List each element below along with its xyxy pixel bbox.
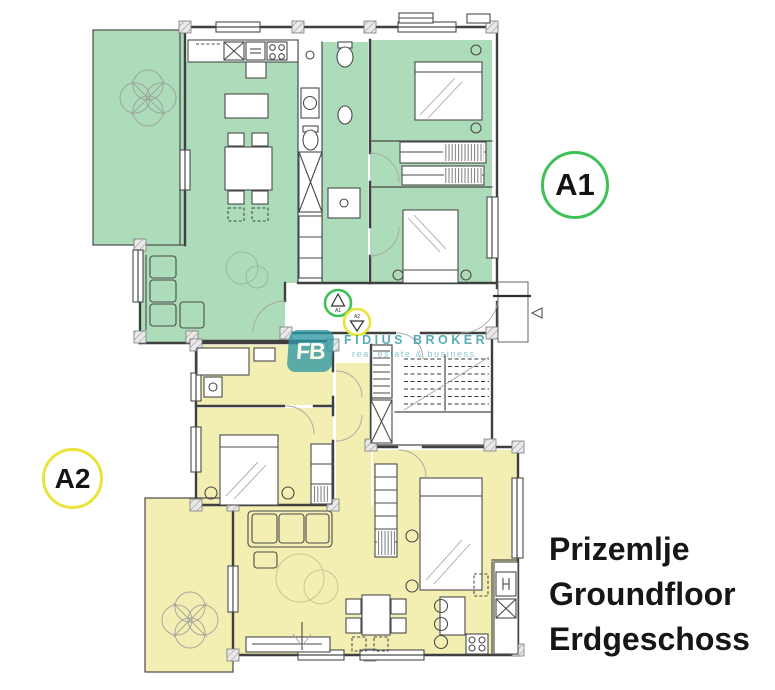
- sink-icon: [224, 42, 244, 60]
- terrace-a2: [145, 498, 233, 672]
- shower-icon: [328, 188, 360, 218]
- elevator-shaft-icon: [299, 152, 322, 212]
- fridge-icon: [496, 572, 516, 596]
- a1-badge-label: A1: [555, 167, 595, 203]
- bathroom-a1: [322, 42, 368, 283]
- washbasin-icon: [254, 348, 275, 361]
- floor-title-en: Groundfloor: [549, 572, 750, 617]
- vanity-icon: [197, 348, 249, 375]
- apartment-a2-badge: A2: [42, 448, 103, 509]
- floor-title-hr: Prizemlje: [549, 527, 750, 572]
- a2-badge-label: A2: [55, 463, 91, 495]
- wardrobe-a1-upper: [400, 142, 486, 163]
- kitchen-island-a1: [246, 62, 266, 78]
- sink-icon: [496, 599, 516, 618]
- tv-board-a2: [246, 637, 330, 652]
- wardrobe-a1-lower: [402, 166, 484, 185]
- duct-a2: [371, 345, 392, 443]
- top-wall-tabs: [399, 13, 433, 23]
- floor-title: Prizemlje Groundfloor Erdgeschoss: [549, 527, 750, 662]
- floor-plan-page: A1 A2: [0, 0, 775, 690]
- toilet-icon: [303, 126, 318, 150]
- utility-column-a1: [299, 51, 322, 278]
- entrance-arrow-a2: A2: [344, 309, 370, 335]
- closet-a1: [299, 216, 322, 278]
- cooktop-icon: [246, 42, 265, 60]
- shaft-icon: [371, 400, 392, 443]
- toilet-icon: [337, 42, 353, 67]
- shower-icon: [204, 377, 222, 397]
- floor-title-de: Erdgeschoss: [549, 617, 750, 662]
- entrance-porch: [493, 282, 542, 342]
- stove-icon: [267, 42, 287, 60]
- entrance-a1-label: A1: [335, 308, 341, 314]
- apartment-a1-badge: A1: [541, 151, 609, 219]
- wardrobe-a2-bedroom1: [311, 444, 332, 504]
- pendant-icon: [306, 51, 314, 59]
- coffee-table-a1: [225, 94, 268, 118]
- wardrobe-a2-bedroom2: [375, 464, 397, 557]
- washing-machine-icon: [301, 88, 319, 118]
- stove-icon: [466, 634, 488, 654]
- terrace-a1: [93, 30, 185, 245]
- entrance-a2-label: A2: [354, 314, 360, 320]
- washbasin-icon: [338, 106, 352, 124]
- entry-direction-icon: [532, 308, 542, 318]
- stairs-icon: [395, 355, 492, 412]
